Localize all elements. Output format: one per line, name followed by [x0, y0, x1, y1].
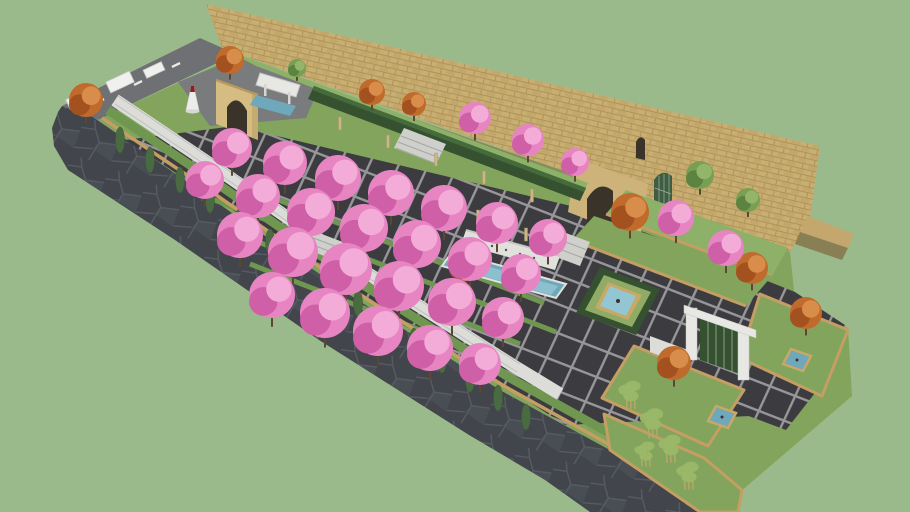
- tree-canopy-highlight: [745, 190, 758, 203]
- spout: [505, 249, 507, 251]
- spout: [491, 245, 493, 247]
- tree-canopy-highlight: [424, 330, 449, 355]
- tree-canopy-highlight: [411, 94, 424, 107]
- bamboo-foliage: [647, 408, 664, 419]
- tree-canopy-highlight: [200, 165, 221, 186]
- pergola-post: [435, 153, 438, 166]
- tree-canopy-highlight: [287, 232, 315, 260]
- tree-canopy-highlight: [543, 223, 564, 244]
- tree-canopy-highlight: [295, 61, 305, 71]
- bamboo-foliage: [641, 441, 654, 450]
- tree-canopy-highlight: [411, 225, 437, 251]
- fountain-jet: [616, 299, 620, 303]
- tree-canopy-highlight: [722, 234, 742, 254]
- bamboo-foliage: [645, 418, 662, 429]
- pergola-post: [525, 228, 528, 241]
- cypress-tree: [354, 290, 363, 316]
- tree-canopy-highlight: [492, 206, 515, 229]
- bamboo-foliage: [623, 391, 638, 402]
- tree-canopy-highlight: [802, 300, 820, 318]
- bamboo-foliage: [665, 435, 680, 446]
- cypress-tree: [176, 167, 185, 193]
- tree-canopy-highlight: [748, 255, 766, 273]
- tree-canopy-highlight: [625, 197, 646, 218]
- tree-canopy-highlight: [305, 193, 331, 219]
- tree-canopy-highlight: [672, 204, 692, 224]
- tree-canopy-highlight: [572, 151, 587, 166]
- tree-canopy-highlight: [319, 293, 347, 321]
- cypress-tree: [116, 127, 125, 153]
- bamboo-foliage: [683, 462, 698, 473]
- tree-canopy-highlight: [234, 217, 259, 242]
- pergola-post: [339, 117, 342, 130]
- tree-canopy-highlight: [498, 301, 521, 324]
- tree-canopy-highlight: [369, 82, 383, 96]
- pergola-post: [483, 171, 486, 184]
- tree-canopy-highlight: [358, 209, 384, 235]
- tree-canopy-highlight: [524, 127, 542, 145]
- tree-canopy-highlight: [475, 347, 498, 370]
- trellis-pillar-right: [738, 328, 749, 380]
- tree-canopy-highlight: [372, 311, 400, 339]
- tree-canopy-highlight: [446, 283, 472, 309]
- cypress-tree: [494, 385, 503, 411]
- tree-canopy-highlight: [340, 248, 369, 277]
- tree-canopy-highlight: [393, 266, 421, 294]
- model-viewport[interactable]: [0, 0, 910, 512]
- tree-canopy-highlight: [266, 277, 291, 302]
- tree-canopy-highlight: [465, 241, 489, 265]
- cypress-tree: [146, 147, 155, 173]
- tree-canopy-highlight: [385, 175, 410, 200]
- bamboo-foliage: [663, 445, 678, 456]
- cypress-tree: [522, 404, 531, 430]
- bamboo-foliage: [625, 381, 640, 392]
- tree-canopy-highlight: [82, 86, 101, 105]
- tree-canopy-highlight: [280, 145, 304, 169]
- pool-jet: [796, 359, 799, 362]
- tree-canopy-highlight: [227, 49, 242, 64]
- tree-canopy-highlight: [516, 258, 538, 280]
- pergola-post: [531, 189, 534, 202]
- tree-canopy-highlight: [670, 349, 689, 368]
- bamboo-foliage: [681, 472, 696, 483]
- tree-canopy-highlight: [471, 105, 489, 123]
- tree-canopy-highlight: [332, 160, 357, 185]
- wall-niche-window: [636, 137, 645, 160]
- tree-canopy-highlight: [438, 190, 463, 215]
- tree-canopy-highlight: [697, 164, 712, 179]
- pergola-post: [387, 135, 390, 148]
- tree-canopy-highlight: [253, 178, 277, 202]
- pool-jet: [721, 416, 724, 419]
- bamboo-foliage: [639, 451, 652, 460]
- tree-canopy-highlight: [227, 132, 249, 154]
- model-render: [0, 0, 910, 512]
